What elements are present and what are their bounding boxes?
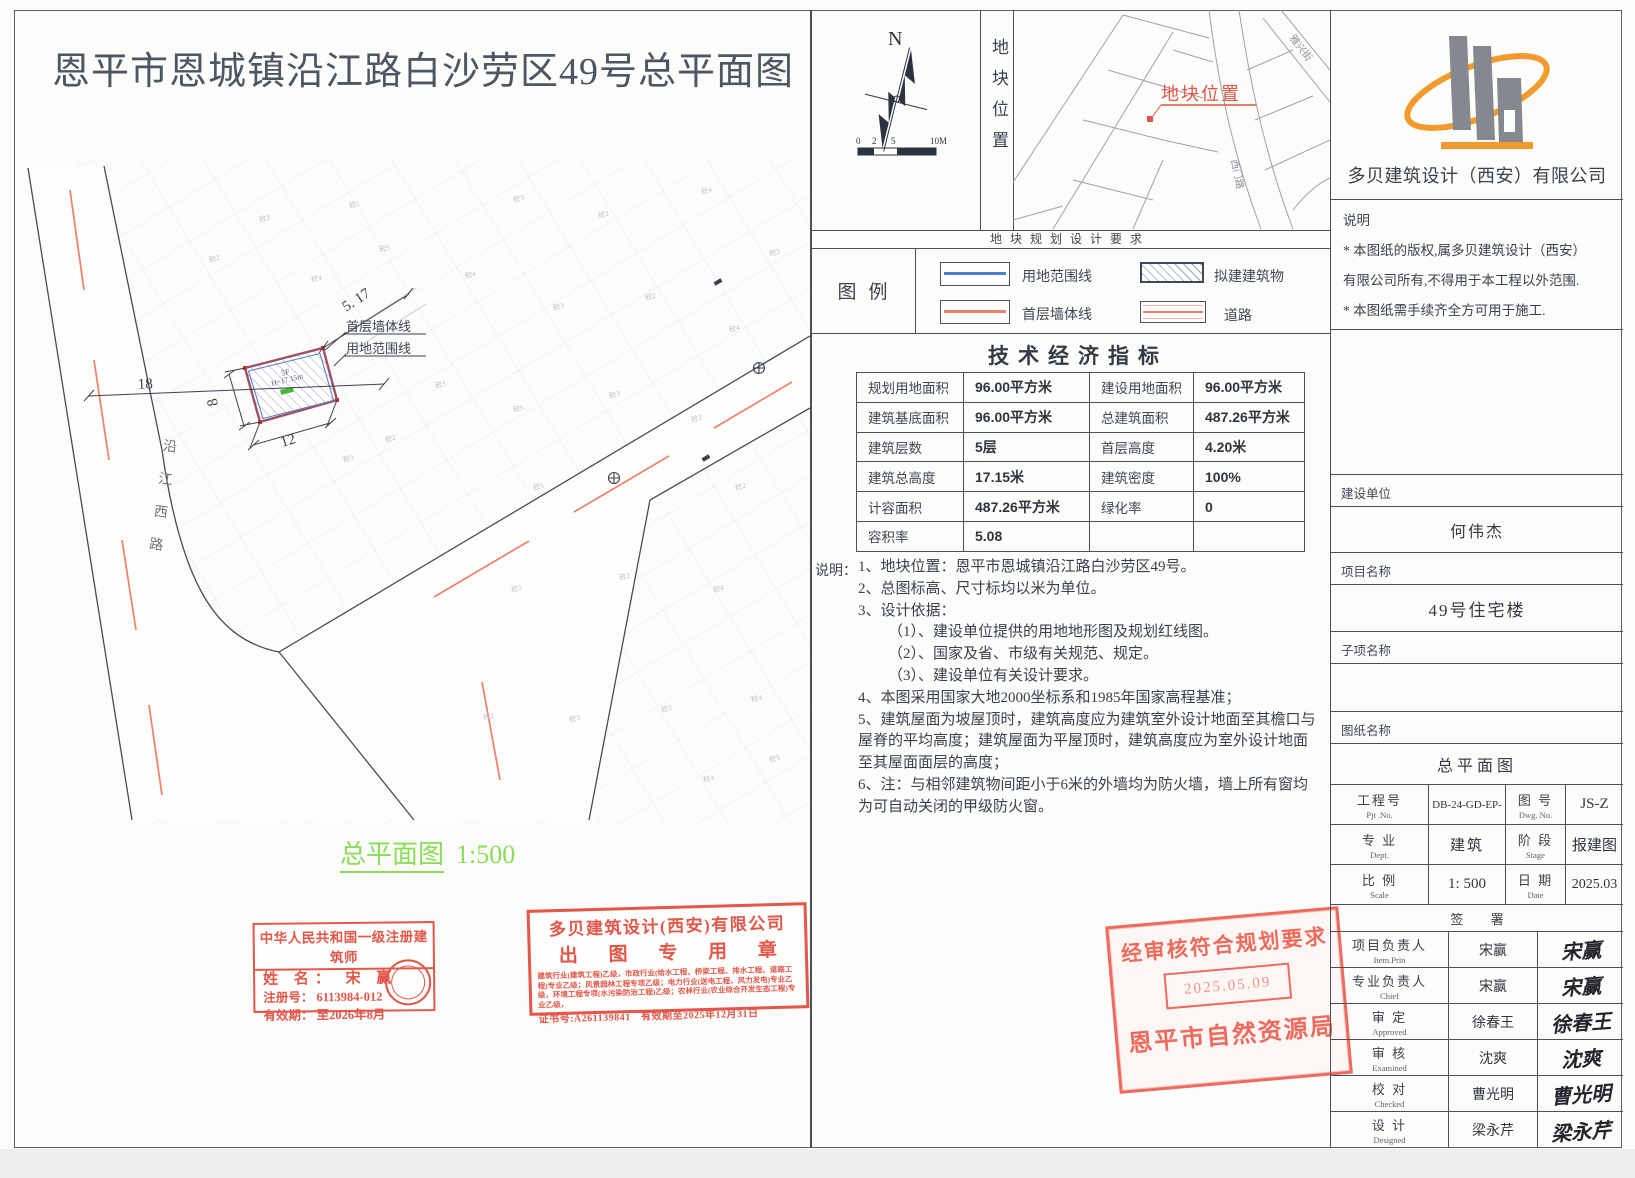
approval-stamp-authority: 恩平市自然资源局 — [1117, 1005, 1347, 1060]
dept-value: 建筑 — [1450, 834, 1484, 855]
company-drawing-stamp: 多贝建筑设计(西安)有限公司 出 图 专 用 章 建筑行业(建筑工程)乙级，市政… — [527, 902, 810, 1016]
svg-text:西门路: 西门路 — [1228, 158, 1247, 190]
page-title: 恩平市恩城镇沿江路白沙劳区49号总平面图 — [52, 40, 794, 95]
copyright-notice-cell: 说明 * 本图纸的版权,属多贝建筑设计（西安） 有限公司所有,不得用于本工程以外… — [1331, 200, 1623, 330]
note-line: 4、本图采用国家大地2000坐标系和1985年国家高程基准； — [858, 688, 1322, 710]
note-line: 2、总图标高、尺寸标均以米为单位。 — [858, 579, 1322, 601]
logo-cell: 多贝建筑设计（西安）有限公司 — [1331, 10, 1623, 200]
table-row: 建筑总高度17.15米建筑密度100% — [857, 462, 1305, 492]
signer-row: 审 核Examined 沈爽 沈爽 — [1331, 1040, 1623, 1076]
drawing-sheet: 恩平市恩城镇沿江路白沙劳区49号总平面图 — [0, 0, 1635, 1178]
owner-label: 建设单位 — [1331, 475, 1623, 507]
pjt-no-label: 工程号 — [1357, 790, 1402, 809]
plan-caption-title: 总平面图 — [340, 840, 444, 873]
planning-approval-stamp: 经审核符合规划要求 2025.05.09 恩平市自然资源局 — [1105, 906, 1353, 1094]
signature: 徐春王 — [1550, 1005, 1612, 1038]
owner-value: 何伟杰 — [1331, 507, 1623, 553]
signature: 沈爽 — [1560, 1042, 1602, 1074]
signature-header: 签 署 — [1331, 905, 1623, 932]
architect-registration-stamp: 中华人民共和国一级注册建筑师 姓 名： 宋 赢 注册号： 6113984-012… — [253, 921, 436, 1013]
notice-line: * 本图纸的版权,属多贝建筑设计（西安） — [1343, 236, 1623, 266]
indicators-table: 规划用地面积96.00平方米建设用地面积96.00平方米 建筑基底面积96.00… — [856, 372, 1305, 552]
location-map: 地块位置 雅兴街 西门路 — [1013, 10, 1330, 231]
approval-stamp-date: 2025.05.09 — [1163, 963, 1292, 1010]
panel-divider — [810, 10, 812, 1148]
plan-caption-scale: 1:500 — [456, 840, 515, 869]
dim-18: 18 — [137, 376, 153, 393]
notice-head: 说明 — [1343, 206, 1623, 236]
company-stamp-qualifications: 建筑行业(建筑工程)乙级，市政行业(给水工程、桥梁工程、排水工程、道路工程)专业… — [537, 964, 800, 1009]
signer-row: 审 定Approved 徐春王 徐春王 — [1331, 1004, 1623, 1040]
wall-line-label: 首层墙体线 — [346, 319, 411, 334]
legend-wall-label: 首层墙体线 — [1022, 304, 1092, 324]
pjt-dwg-row: 工程号Pjt .No. DB-24-GD-EP- 图 号Dwg. No. JS-… — [1331, 785, 1623, 825]
blank-cell — [1331, 330, 1623, 475]
table-row: 计容面积487.26平方米绿化率0 — [857, 492, 1305, 522]
round-seal-icon — [385, 959, 431, 1005]
requirements-strip: 地块规划设计要求 — [810, 230, 1330, 249]
legend-building-label: 拟建建筑物 — [1214, 266, 1284, 286]
dept-label: 专 业 — [1362, 830, 1397, 849]
note-line: 3、设计依据： — [858, 601, 1322, 623]
location-streets — [1013, 10, 1330, 229]
drawing-name-value: 总平面图 — [1331, 744, 1623, 785]
signer-row: 设 计Designed 梁永芹 梁永芹 — [1331, 1112, 1623, 1148]
scale-date-row: 比 例Scale 1: 500 日 期Date 2025.03 — [1331, 865, 1623, 905]
note-line: 6、注：与相邻建筑物间距小于6米的外墙均为防火墙，墙上所有窗均为可自动关闭的甲级… — [858, 775, 1322, 819]
svg-text:10M: 10M — [930, 136, 947, 146]
legend: 图例 用地范围线 拟建建筑物 首层墙体线 道路 — [810, 248, 1330, 334]
location-road-names: 雅兴街 西门路 — [1228, 32, 1315, 190]
drawing-name-label: 图纸名称 — [1331, 712, 1623, 744]
project-value: 49号住宅楼 — [1331, 585, 1623, 632]
notes-list: 1、地块位置：恩平市恩城镇沿江路白沙劳区49号。 2、总图标高、尺寸标均以米为单… — [858, 557, 1322, 819]
legend-road-label: 道路 — [1224, 305, 1252, 325]
signature: 宋赢 — [1560, 934, 1602, 966]
title-block: 多贝建筑设计（西安）有限公司 说明 * 本图纸的版权,属多贝建筑设计（西安） 有… — [1330, 10, 1623, 1148]
scan-edge — [0, 1149, 1635, 1178]
date-label: 日 期 — [1518, 870, 1553, 889]
signature: 曹光明 — [1550, 1077, 1612, 1110]
legend-road-symbol — [1140, 301, 1206, 323]
table-row: 建筑层数5层首层高度4.20米 — [857, 432, 1305, 462]
notes-label: 说明： — [815, 560, 857, 580]
dept-stage-row: 专 业Dept. 建筑 阶 段Stage 报建图 — [1331, 825, 1623, 865]
signer-row: 专业负责人Chief 宋赢 宋赢 — [1331, 968, 1623, 1004]
plan-caption: 总平面图1:500 — [340, 834, 515, 871]
dwg-no-value: JS-Z — [1580, 796, 1608, 813]
location-map-label: 地块位置 — [1161, 84, 1241, 104]
company-name: 多贝建筑设计（西安）有限公司 — [1331, 162, 1623, 188]
notice-line: 有限公司所有,不得用于本工程以外范围. — [1343, 266, 1623, 296]
note-line: 5、建筑屋面为坡屋顶时，建筑高度应为建筑室外设计地面至其檐口与屋脊的平均高度；建… — [858, 710, 1322, 775]
note-line: （2）、国家及省、市级有关规范、规定。 — [858, 644, 1322, 666]
indicators-title: 技术经济指标 — [856, 340, 1300, 370]
signature: 宋赢 — [1560, 970, 1602, 1002]
signature: 梁永芹 — [1550, 1113, 1612, 1146]
svg-text:0: 0 — [856, 136, 861, 146]
date-value: 2025.03 — [1572, 877, 1618, 893]
scale-bar: 0 2 5 10M — [848, 135, 958, 165]
legend-boundary-symbol — [940, 262, 1010, 286]
scale-value: 1: 500 — [1448, 876, 1486, 893]
approval-stamp-text: 经审核符合规划要求 — [1109, 919, 1339, 969]
stage-label: 阶 段 — [1518, 830, 1553, 849]
note-line: （3）、建设单位有关设计要求。 — [858, 666, 1322, 688]
table-row: 规划用地面积96.00平方米建设用地面积96.00平方米 — [857, 373, 1305, 403]
svg-text:5: 5 — [891, 136, 896, 146]
dwg-no-label: 图 号 — [1518, 790, 1553, 809]
scale-label: 比 例 — [1362, 870, 1397, 889]
signer-row: 校 对Checked 曹光明 曹光明 — [1331, 1076, 1623, 1112]
legend-wall-symbol — [940, 300, 1010, 324]
location-plot-marker: 地块位置 — [1147, 84, 1256, 122]
table-row: 容积率5.08 — [857, 521, 1305, 551]
table-row: 建筑基底面积96.00平方米总建筑面积487.26平方米 — [857, 402, 1305, 432]
stage-value: 报建图 — [1572, 834, 1617, 855]
svg-text:雅兴街: 雅兴街 — [1287, 32, 1316, 64]
svg-text:2: 2 — [872, 136, 877, 146]
notice-line: * 本图纸需手续齐全方可用于施工. — [1343, 296, 1623, 326]
legend-title: 图例 — [810, 248, 916, 333]
note-line: （1）、建设单位提供的用地地形图及规划红线图。 — [858, 622, 1322, 644]
location-strip-label: 地块位置 — [986, 38, 1011, 162]
north-arrow-box: N 0 2 5 10M — [810, 10, 981, 231]
note-line: 1、地块位置：恩平市恩城镇沿江路白沙劳区49号。 — [858, 557, 1322, 579]
architect-validity: 有效期： 至2026年8月 — [255, 1005, 433, 1025]
company-logo-icon — [1397, 26, 1557, 156]
location-strip: 地块位置 — [980, 10, 1014, 231]
site-plan-map: 5F H=17.15m 18 8 12 5. 17 — [14, 160, 810, 825]
subproject-value — [1331, 664, 1623, 712]
legend-building-symbol — [1140, 262, 1204, 283]
subproject-label: 子项名称 — [1331, 632, 1623, 664]
signer-row: 项目负责人Item.Prin 宋赢 宋赢 — [1331, 932, 1623, 968]
legend-boundary-label: 用地范围线 — [1022, 266, 1092, 286]
project-label: 项目名称 — [1331, 553, 1623, 585]
pjt-no-value: DB-24-GD-EP- — [1432, 799, 1502, 811]
boundary-line-label: 用地范围线 — [346, 341, 411, 356]
